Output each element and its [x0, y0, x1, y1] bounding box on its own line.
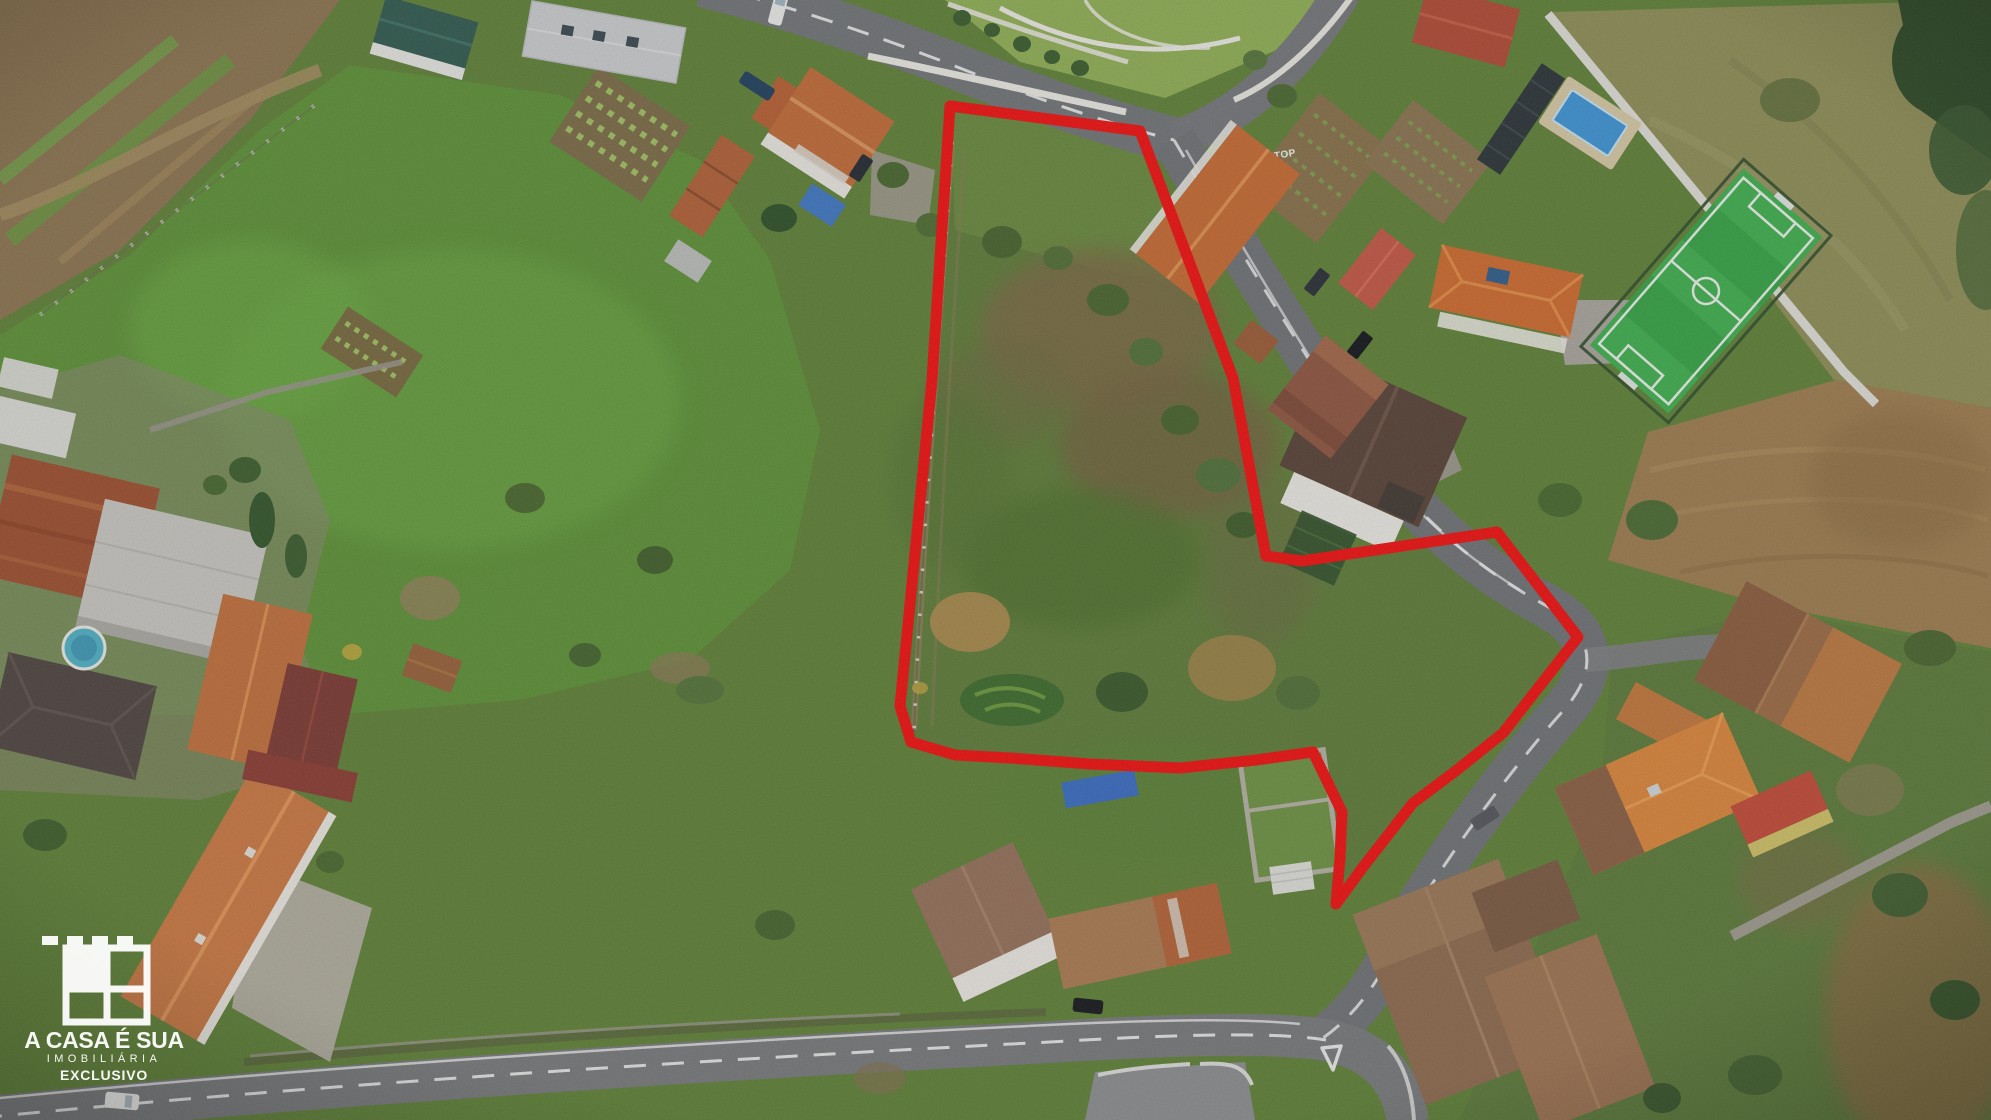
- aerial-photo: STOP: [0, 0, 1991, 1120]
- brand-subtitle: IMOBILIÁRIA: [47, 1052, 161, 1065]
- icon-dash: [92, 936, 108, 945]
- icon-filled-pane: [69, 951, 107, 989]
- brand-badge: EXCLUSIVO: [60, 1067, 148, 1083]
- aerial-photo-canvas: STOP: [0, 0, 1991, 1120]
- vignette: [0, 0, 1991, 1120]
- brand-title: A CASA É SUA: [24, 1026, 184, 1053]
- icon-dash: [42, 936, 58, 945]
- icon-dash: [67, 936, 83, 945]
- icon-dash: [117, 936, 133, 945]
